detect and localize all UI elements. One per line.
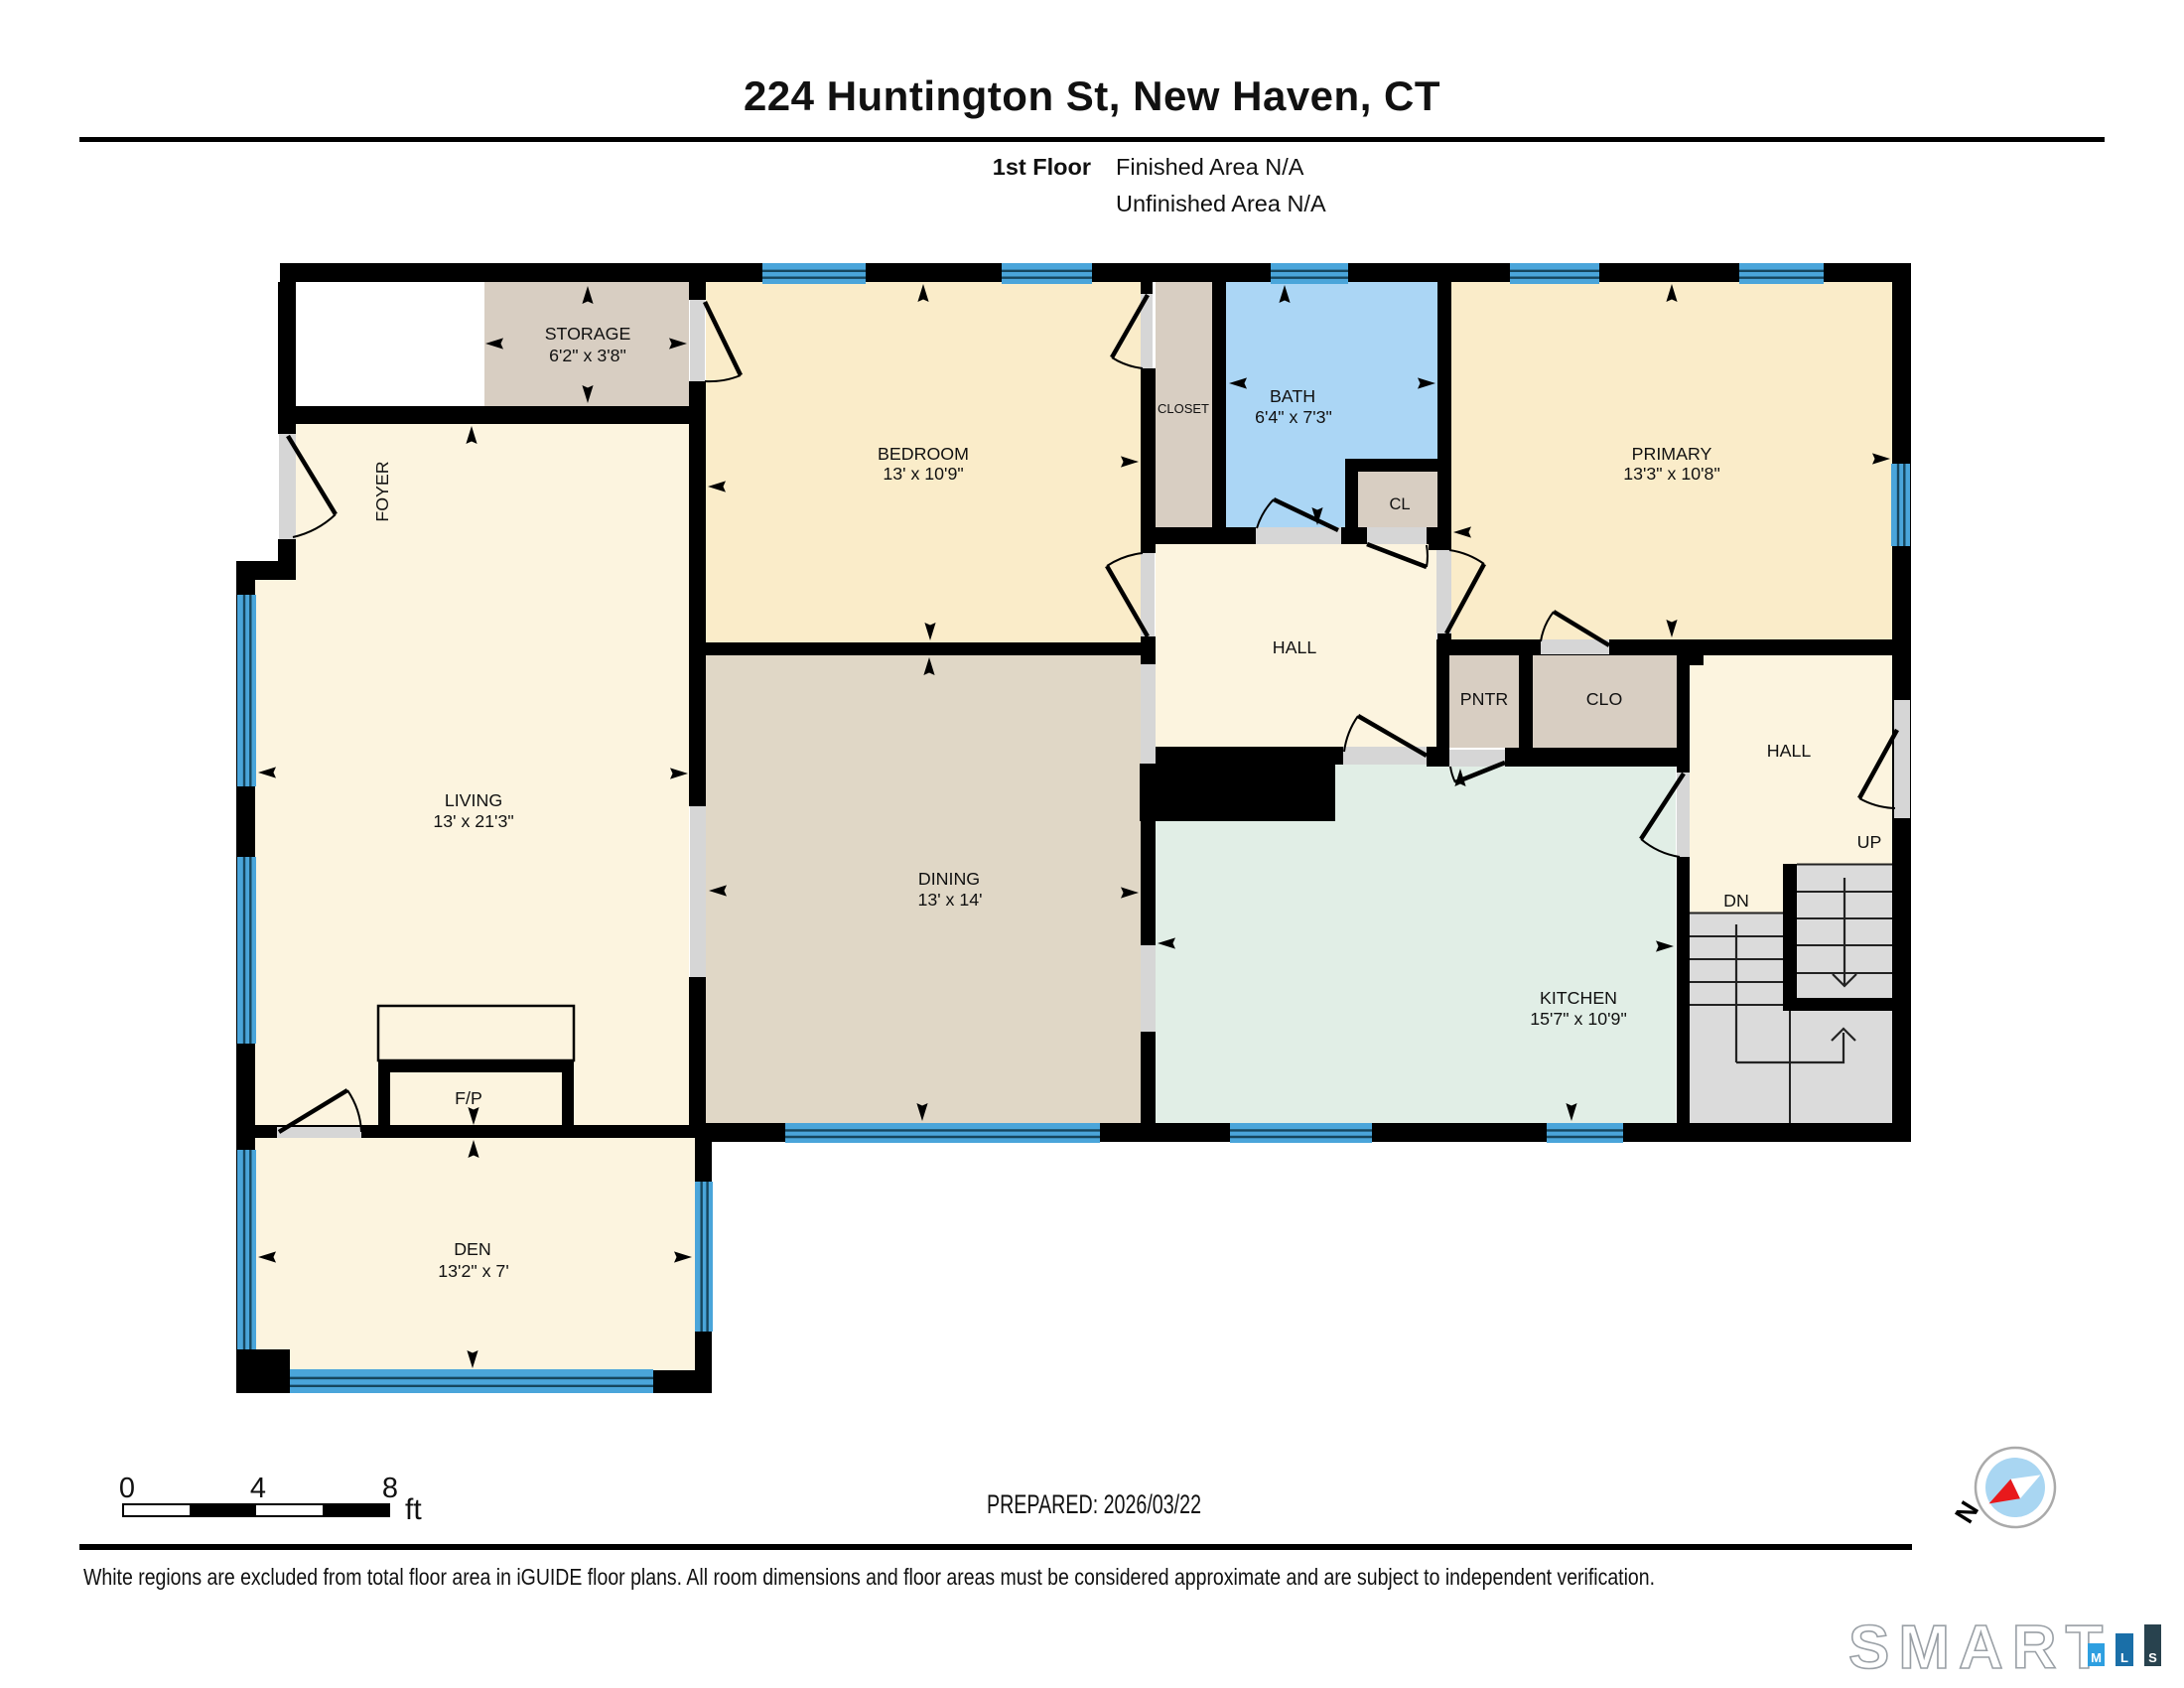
svg-text:ft: ft — [405, 1493, 422, 1526]
svg-text:S: S — [2148, 1650, 2157, 1665]
svg-text:6'4" x 7'3": 6'4" x 7'3" — [1255, 407, 1332, 427]
svg-text:224 Huntington St, New Haven,: 224 Huntington St, New Haven, CT — [744, 72, 1440, 119]
svg-text:CLO: CLO — [1586, 689, 1623, 709]
svg-text:DEN: DEN — [454, 1239, 491, 1259]
svg-text:Unfinished Area N/A: Unfinished Area N/A — [1116, 191, 1326, 216]
svg-text:HALL: HALL — [1273, 637, 1317, 657]
svg-text:13' x 10'9": 13' x 10'9" — [883, 464, 963, 484]
svg-text:HALL: HALL — [1767, 741, 1812, 761]
svg-text:15'7" x 10'9": 15'7" x 10'9" — [1530, 1009, 1627, 1029]
svg-text:White regions are excluded fro: White regions are excluded from total fl… — [83, 1564, 1655, 1590]
svg-text:1st Floor: 1st Floor — [993, 154, 1091, 180]
svg-text:13' x 21'3": 13' x 21'3" — [433, 811, 513, 831]
svg-text:DINING: DINING — [918, 869, 980, 889]
svg-text:Finished Area N/A: Finished Area N/A — [1116, 154, 1304, 180]
svg-text:KITCHEN: KITCHEN — [1540, 988, 1617, 1008]
svg-text:BATH: BATH — [1270, 386, 1315, 406]
svg-text:CLOSET: CLOSET — [1158, 401, 1209, 416]
svg-text:4: 4 — [250, 1473, 266, 1504]
svg-text:13'3" x 10'8": 13'3" x 10'8" — [1623, 464, 1720, 484]
svg-text:13' x 14': 13' x 14' — [917, 890, 982, 910]
svg-text:CL: CL — [1389, 495, 1410, 513]
svg-text:PNTR: PNTR — [1460, 689, 1509, 709]
svg-text:0: 0 — [119, 1473, 135, 1504]
svg-text:LIVING: LIVING — [445, 790, 502, 810]
svg-text:PRIMARY: PRIMARY — [1632, 444, 1712, 464]
svg-text:F/P: F/P — [455, 1088, 482, 1108]
svg-text:L: L — [2120, 1650, 2128, 1665]
svg-text:STORAGE: STORAGE — [545, 324, 631, 344]
svg-text:8: 8 — [382, 1473, 398, 1504]
svg-text:13'2" x 7': 13'2" x 7' — [438, 1261, 508, 1281]
svg-text:SMART: SMART — [1848, 1614, 2112, 1682]
svg-text:UP: UP — [1857, 832, 1882, 852]
svg-text:FOYER: FOYER — [372, 461, 392, 521]
svg-text:DN: DN — [1723, 891, 1749, 911]
svg-text:BEDROOM: BEDROOM — [878, 444, 969, 464]
svg-text:6'2" x 3'8": 6'2" x 3'8" — [549, 346, 626, 365]
svg-text:M: M — [2091, 1650, 2102, 1665]
svg-text:PREPARED: 2026/03/22: PREPARED: 2026/03/22 — [987, 1489, 1201, 1519]
